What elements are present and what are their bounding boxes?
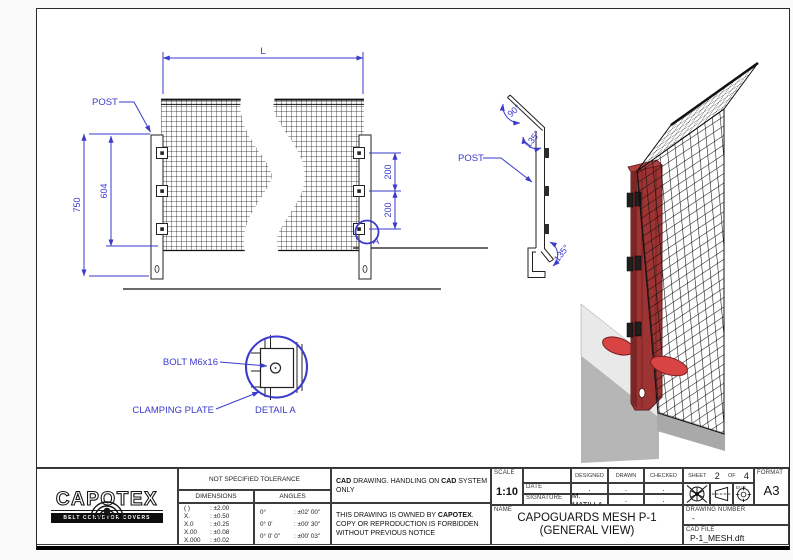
tolerance-header: NOT SPECIFIED TOLERANCE [209,476,300,483]
company-logo: CAPOTEX BELT CONVEYOR COVERS [37,468,178,545]
cad-file-cell: CAD FILE P-1_MESH.dft [683,525,789,545]
checked-date-cell: . [644,483,683,494]
of-label: OF [728,473,736,479]
tolerance-row: X.0: ±0.25 [179,521,253,529]
cad-file-label: CAD FILE [686,527,715,533]
detail-a-title: DETAIL A [255,405,296,416]
tolerance-row: ( ): ±2.00 [179,505,253,513]
checked-signature-cell: . [644,494,683,505]
designed-header-cell: DESIGNED [571,468,608,483]
length-dim-label: L [260,46,265,57]
tolerance-row: X.00: ±0.08 [179,529,253,537]
projection-symbol-cell [710,483,733,505]
height-604-label: 604 [99,183,109,198]
angles-tolerance-table: 0°: ±02' 00" 0° 0': ±00' 30" 0° 0' 0": ±… [254,503,331,545]
drawing-number-label: DRAWING NUMBER [686,507,745,513]
signature-label: SIGNATURE [526,495,562,501]
date-row-label-cell: DATE [523,483,571,494]
detail-geometry [251,335,302,400]
drawing-name-line1: CAPOGUARDS MESH P-1 [517,512,656,525]
spacing-200-label-1: 200 [383,164,393,179]
mesh-panel [161,85,364,267]
crossed-wheel-icon [686,484,708,504]
angle-135-top-label: 135° [523,128,543,149]
drawn-header-cell: DRAWN [608,468,644,483]
spacing-200-label-2: 200 [383,202,393,217]
ownership-note-cell: THIS DRAWING IS OWNED BY CAPOTEX. COPY O… [331,503,491,545]
height-750-label: 750 [72,197,82,212]
spacer-cell [523,468,571,483]
title-block: CAPOTEX BELT CONVEYOR COVERS NOT SPECIFI… [37,467,789,545]
scale-cell: SCALE 1:10 [491,468,523,505]
sheet-cell: SHEET 2 OF 4 [683,468,754,483]
tolerance-row: 0°: ±02' 00" [255,507,330,519]
mesh-3d [637,63,758,434]
format-cell: FORMAT A3 [754,468,789,505]
tolerance-row: X.000: ±0.02 [179,537,253,545]
sheet-number: 2 [715,471,720,481]
tolerance-row: 0° 0' 0": ±00' 03" [255,531,330,543]
side-post-label: POST [458,153,484,164]
cad-viewer-page: { "colors": { "dimension_blue": "#3a3acc… [0,0,793,560]
angle-dimensions [483,104,558,266]
drawn-date-cell: . [608,483,644,494]
capotex-dome-icon [84,494,130,520]
sheet-label: SHEET [688,473,706,479]
projection-view-cell: EUR [733,483,754,505]
dimensions-tolerance-table: ( ): ±2.00 X.: ±0.50 X.0: ±0.25 X.00: ±0… [178,503,254,545]
angles-header: ANGLES [279,493,305,500]
drawing-name-line2: (GENERAL VIEW) [540,525,635,538]
angles-header-cell: ANGLES [254,490,331,503]
tolerance-row: X.: ±0.50 [179,513,253,521]
tolerance-row: 0° 0': ±00' 30" [255,519,330,531]
clamping-plate-label: CLAMPING PLATE [132,405,214,416]
format-label: FORMAT [757,470,783,476]
isometric-view-drawing [576,61,791,466]
cad-bold: CAD [336,478,351,485]
bolt-label: BOLT M6x16 [163,357,218,368]
tolerance-header-cell: NOT SPECIFIED TOLERANCE [178,468,331,490]
name-label: NAME [494,507,512,513]
front-view-drawing: L POST 750 604 200 200 A [37,9,501,311]
drawing-sheet: L POST 750 604 200 200 A [36,8,790,550]
target-icon [735,486,752,503]
ground-lines [123,248,488,289]
no-scale-symbol-cell [683,483,710,505]
signature-row-label-cell: SIGNATURE [523,494,571,505]
scale-label: SCALE [494,470,515,476]
dimensions-header: DIMENSIONS [195,493,236,500]
projection-cone-icon [711,486,732,502]
detail-a-marker-label: A [373,236,380,247]
checked-header-cell: CHECKED [644,468,683,483]
designed-signature-cell: M. MATILLA [571,494,608,505]
detail-a-drawing: BOLT M6x16 CLAMPING PLATE DETAIL A [126,316,351,441]
cad-note-cell: CAD DRAWING. HANDLING ON CAD SYSTEM ONLY [331,468,491,503]
post-label: POST [92,97,118,108]
dimensions-header-cell: DIMENSIONS [178,490,254,503]
drawing-number-cell: DRAWING NUMBER - [683,505,789,525]
sheet-total: 4 [744,471,749,481]
cad-bold: CAD [441,478,456,485]
date-label: DATE [526,484,542,490]
drawn-signature-cell: . [608,494,644,505]
drawing-name-cell: NAME CAPOGUARDS MESH P-1 (GENERAL VIEW) [491,505,683,545]
